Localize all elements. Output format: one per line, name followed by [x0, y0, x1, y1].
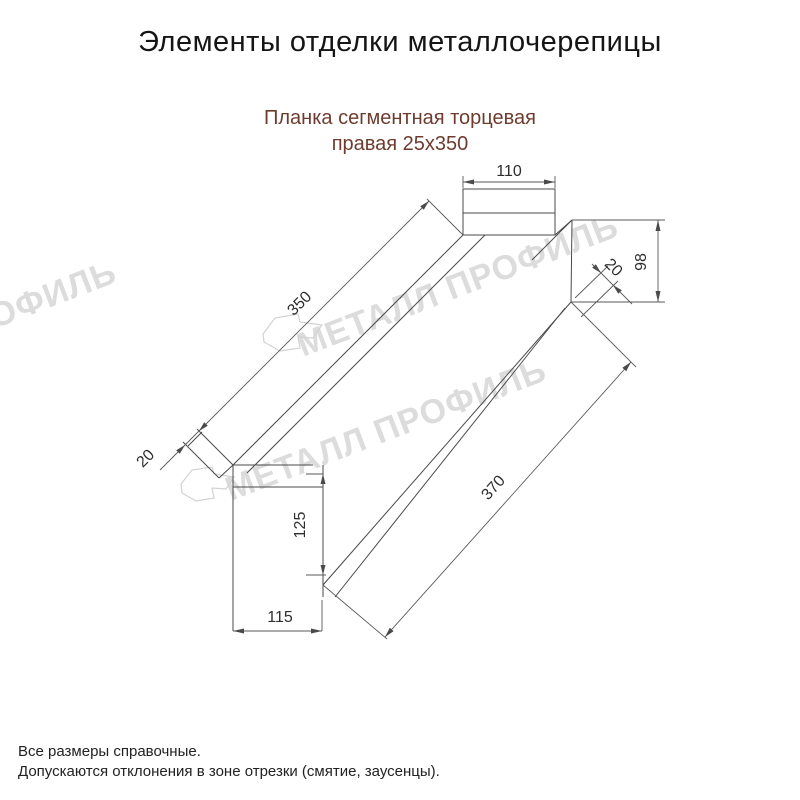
watermark-text-partial: МЕТАЛЛ ПРОФИЛЬ: [0, 253, 122, 411]
drawing-page: Элементы отделки металлочерепицы Планка …: [0, 0, 800, 800]
dim-label-350: 350: [284, 288, 315, 319]
dim-label-110: 110: [496, 163, 522, 180]
dimension-110: 110: [463, 163, 555, 188]
dim-label-20-left: 20: [134, 446, 159, 471]
dimension-20-left: 20: [134, 445, 185, 471]
footer-notes: Все размеры справочные. Допускаются откл…: [18, 742, 778, 782]
watermark-layer: МЕТАЛЛ ПРОФИЛЬ МЕТАЛЛ ПРОФИЛЬ МЕТАЛЛ ПРО…: [0, 207, 624, 509]
footer-note-line2: Допускаются отклонения в зоне отрезки (с…: [18, 762, 778, 782]
dimension-125: 125: [292, 474, 326, 575]
footer-note-line1: Все размеры справочные.: [18, 742, 778, 762]
dimension-370: 370: [323, 302, 636, 639]
dim-label-98: 98: [633, 253, 650, 271]
technical-drawing: МЕТАЛЛ ПРОФИЛЬ МЕТАЛЛ ПРОФИЛЬ МЕТАЛЛ ПРО…: [0, 0, 800, 800]
dimension-20-right: 20: [575, 256, 632, 317]
dimension-115: 115: [233, 600, 322, 634]
dim-label-370: 370: [478, 472, 509, 503]
dim-label-115: 115: [267, 609, 293, 626]
dim-label-125: 125: [292, 512, 309, 539]
top-tab-face: [463, 189, 555, 235]
